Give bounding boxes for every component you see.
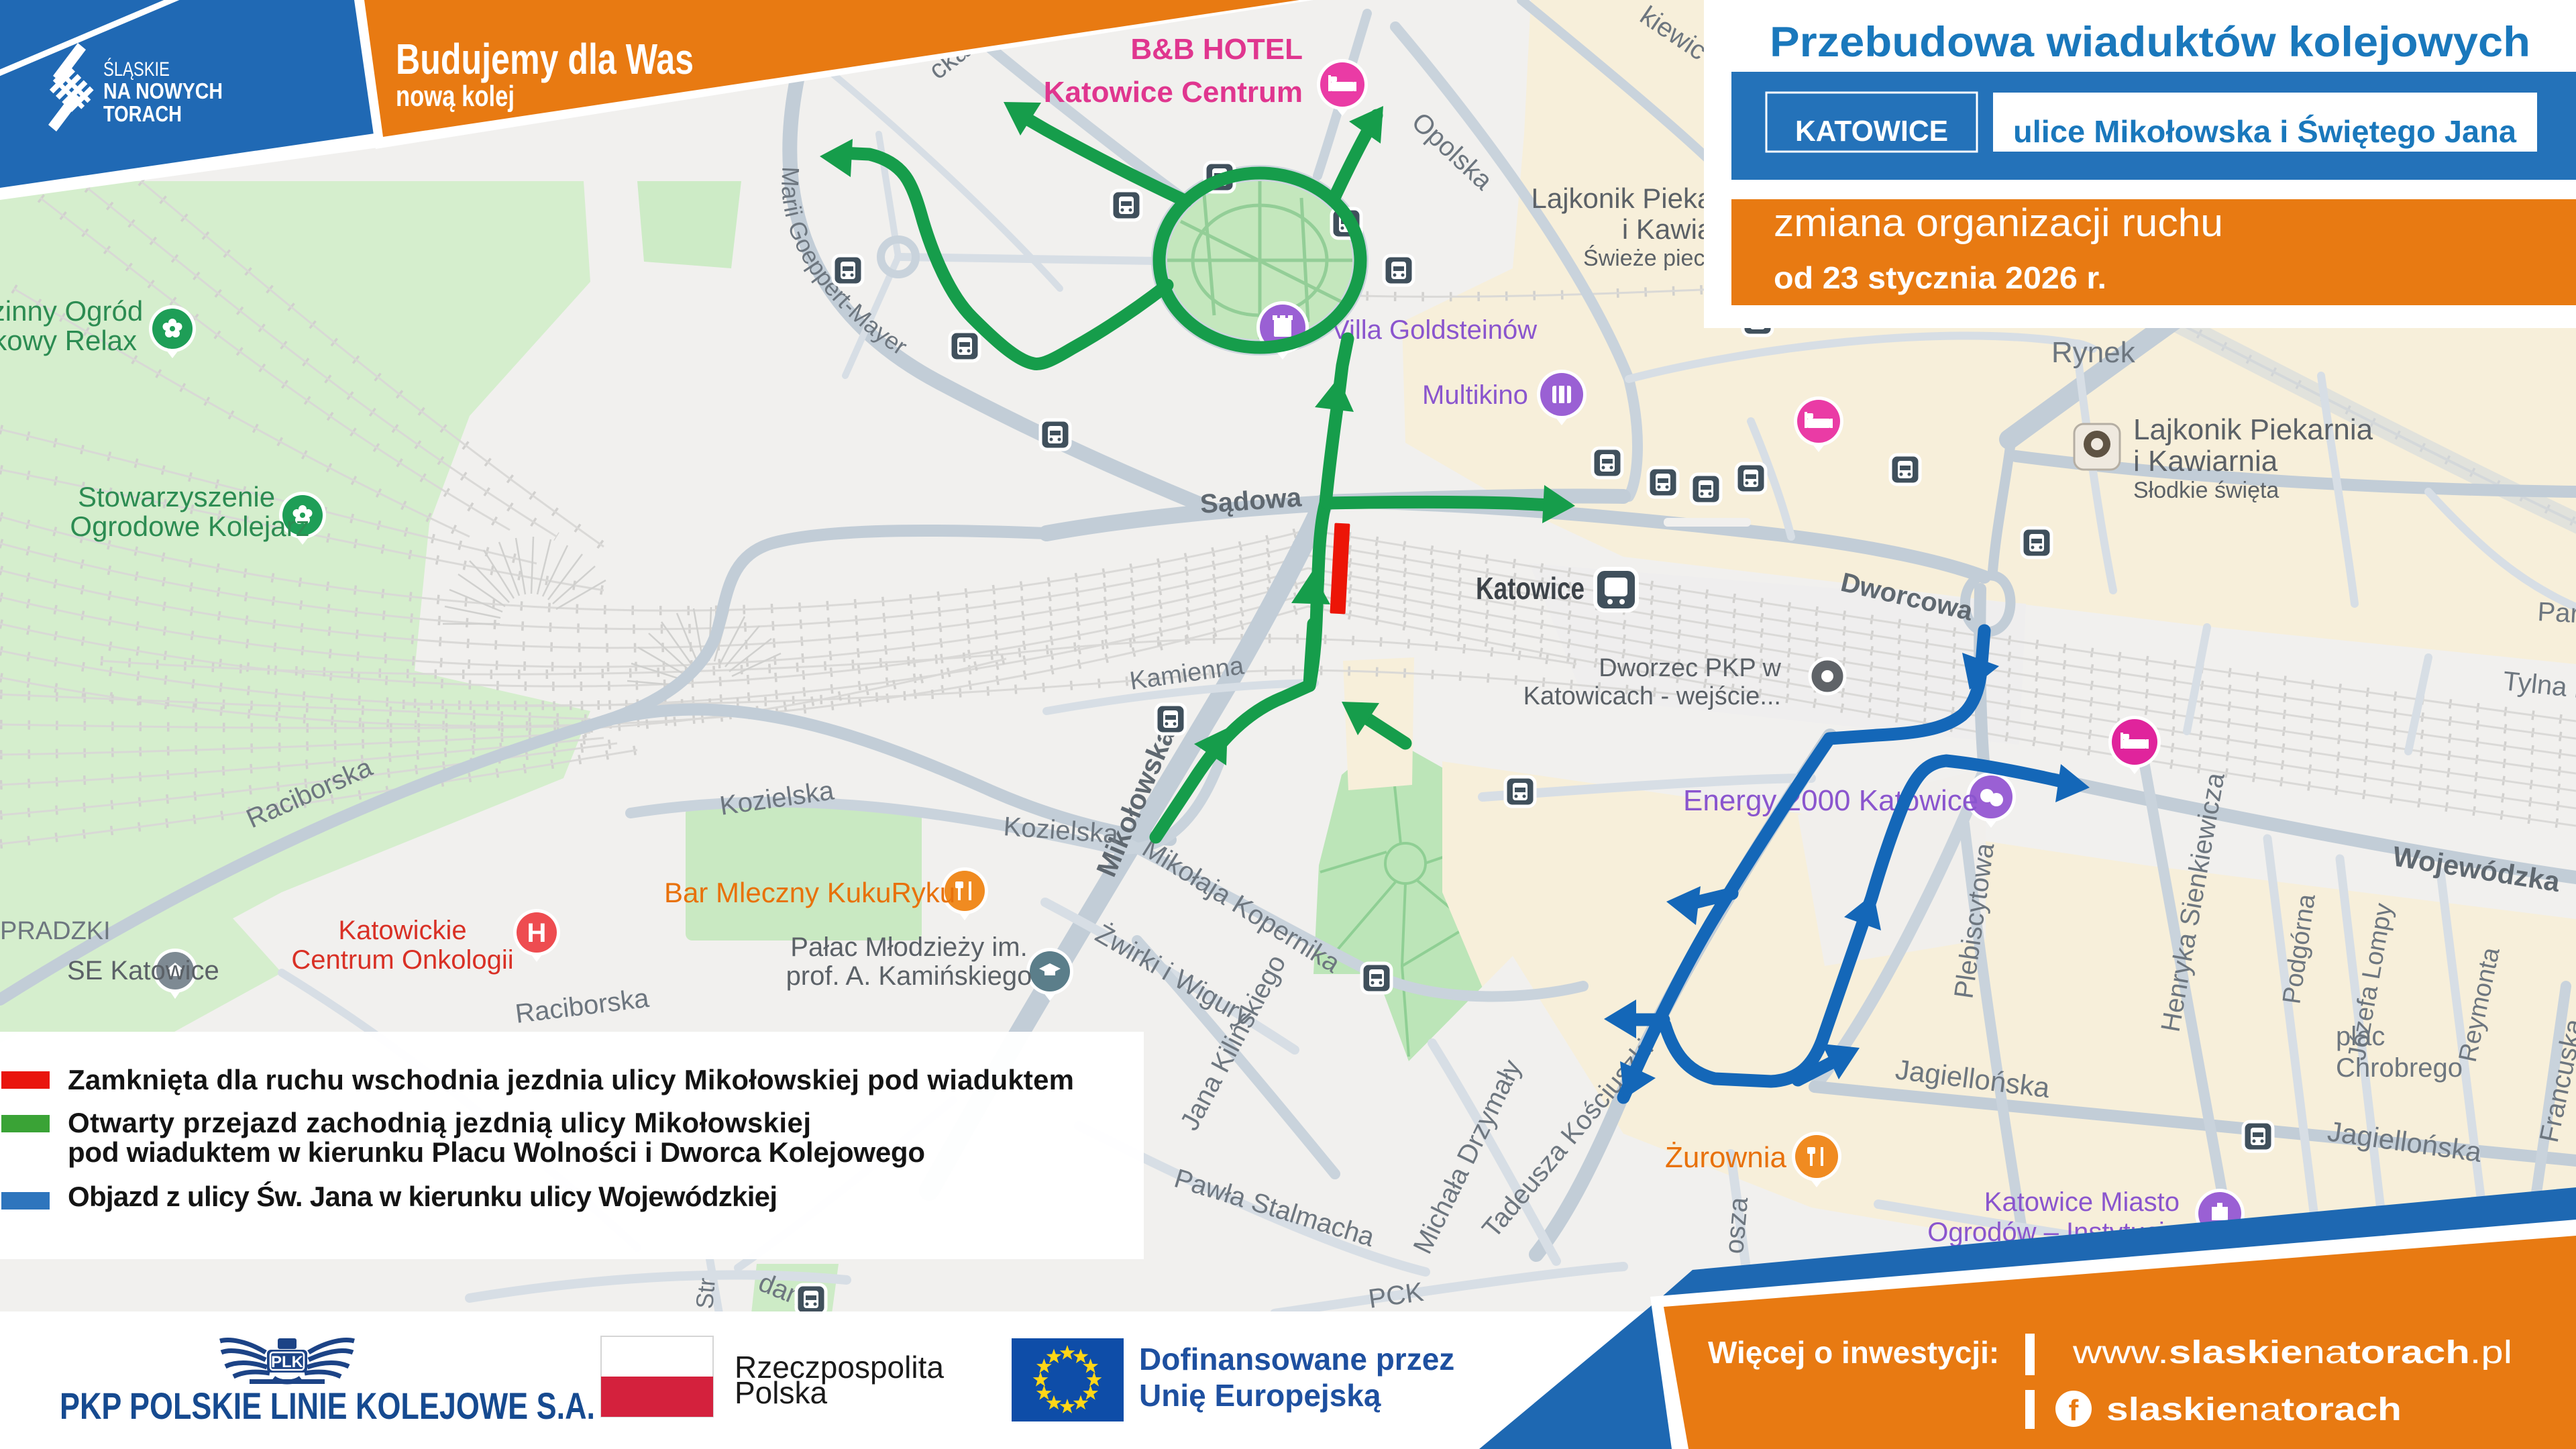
svg-text:Dworzec PKP w: Dworzec PKP w [1599,654,1781,682]
svg-text:zmiana organizacji ruchu: zmiana organizacji ruchu [1774,201,2223,245]
svg-text:Paraf: Paraf [2537,597,2576,630]
svg-text:B&B HOTEL: B&B HOTEL [1130,33,1303,66]
svg-text:Dofinansowane przez: Dofinansowane przez [1139,1342,1454,1377]
svg-text:Centrum Onkologii: Centrum Onkologii [291,945,513,975]
svg-text:KATOWICE: KATOWICE [1795,115,1948,148]
svg-text:Otwarty przejazd zachodnią jez: Otwarty przejazd zachodnią jezdnią ulicy… [68,1107,811,1138]
svg-text:Str: Str [690,1277,720,1309]
svg-text:Villa Goldsteinów: Villa Goldsteinów [1332,315,1537,345]
svg-text:ulice Mikołowska i Świętego Ja: ulice Mikołowska i Świętego Jana [2013,114,2516,149]
svg-text:www.slaskienatorach.pl: www.slaskienatorach.pl [2072,1335,2512,1371]
svg-text:f: f [2069,1394,2079,1427]
svg-text:NA NOWYCH: NA NOWYCH [103,78,223,103]
svg-text:łkowy Relax: łkowy Relax [0,325,137,356]
svg-text:Słodkie święta: Słodkie święta [2133,478,2279,503]
svg-text:H: H [527,918,547,948]
svg-text:zinny Ogród: zinny Ogród [0,295,143,327]
svg-text:Unię Europejską: Unię Europejską [1139,1378,1381,1413]
svg-text:Rynek: Rynek [2051,336,2136,369]
svg-text:Zamknięta dla ruchu wschodnia: Zamknięta dla ruchu wschodnia jezdnia ul… [68,1064,1074,1095]
svg-text:Polska: Polska [735,1375,827,1410]
svg-text:Pałac Młodzieży im.: Pałac Młodzieży im. [790,932,1027,962]
svg-text:Katowice Miasto: Katowice Miasto [1984,1187,2180,1217]
svg-text:Przebudowa wiaduktów kolejowyc: Przebudowa wiaduktów kolejowych [1770,19,2530,66]
svg-text:TORACH: TORACH [103,101,182,126]
svg-text:Katowicach - wejście...: Katowicach - wejście... [1523,682,1781,710]
svg-text:Ogrodowe Kolejarz: Ogrodowe Kolejarz [70,511,309,542]
svg-text:pod wiaduktem w kierunku Placu: pod wiaduktem w kierunku Placu Wolności … [68,1136,925,1168]
svg-text:i Kawiarnia: i Kawiarnia [2133,445,2278,478]
svg-text:PRADZKI: PRADZKI [0,917,111,945]
svg-text:Lajkonik Piekarnia: Lajkonik Piekarnia [2133,413,2373,446]
svg-text:Objazd z ulicy Św. Jana w kier: Objazd z ulicy Św. Jana w kierunku ulicy… [68,1180,777,1212]
svg-text:PLK: PLK [271,1353,304,1371]
svg-text:slaskienatorach: slaskienatorach [2106,1392,2402,1428]
svg-text:Więcej o inwestycji:: Więcej o inwestycji: [1708,1335,1999,1370]
svg-text:Katowickie: Katowickie [338,916,466,945]
svg-text:prof. A. Kamińskiego: prof. A. Kamińskiego [786,961,1032,991]
svg-text:ŚLĄSKIE: ŚLĄSKIE [103,58,170,80]
svg-text:Stowarzyszenie: Stowarzyszenie [78,481,275,513]
svg-text:Budujemy dla Was: Budujemy dla Was [396,35,694,83]
svg-text:osza: osza [1719,1195,1754,1255]
svg-text:nową kolej: nową kolej [396,80,515,113]
svg-text:Katowice: Katowice [1476,571,1585,606]
svg-text:Multikino: Multikino [1422,380,1528,410]
svg-text:Żurownia: Żurownia [1665,1141,1786,1174]
svg-text:Bar Mleczny KukuRyku: Bar Mleczny KukuRyku [664,877,955,908]
svg-text:SE Katowice: SE Katowice [67,956,219,985]
svg-text:Katowice Centrum: Katowice Centrum [1044,76,1303,109]
svg-text:PKP POLSKIE LINIE KOLEJOWE S.A: PKP POLSKIE LINIE KOLEJOWE S.A. [60,1385,595,1427]
svg-text:od 23 stycznia 2026 r.: od 23 stycznia 2026 r. [1774,260,2106,295]
svg-text:Energy 2000 Katowice: Energy 2000 Katowice [1683,784,1978,817]
